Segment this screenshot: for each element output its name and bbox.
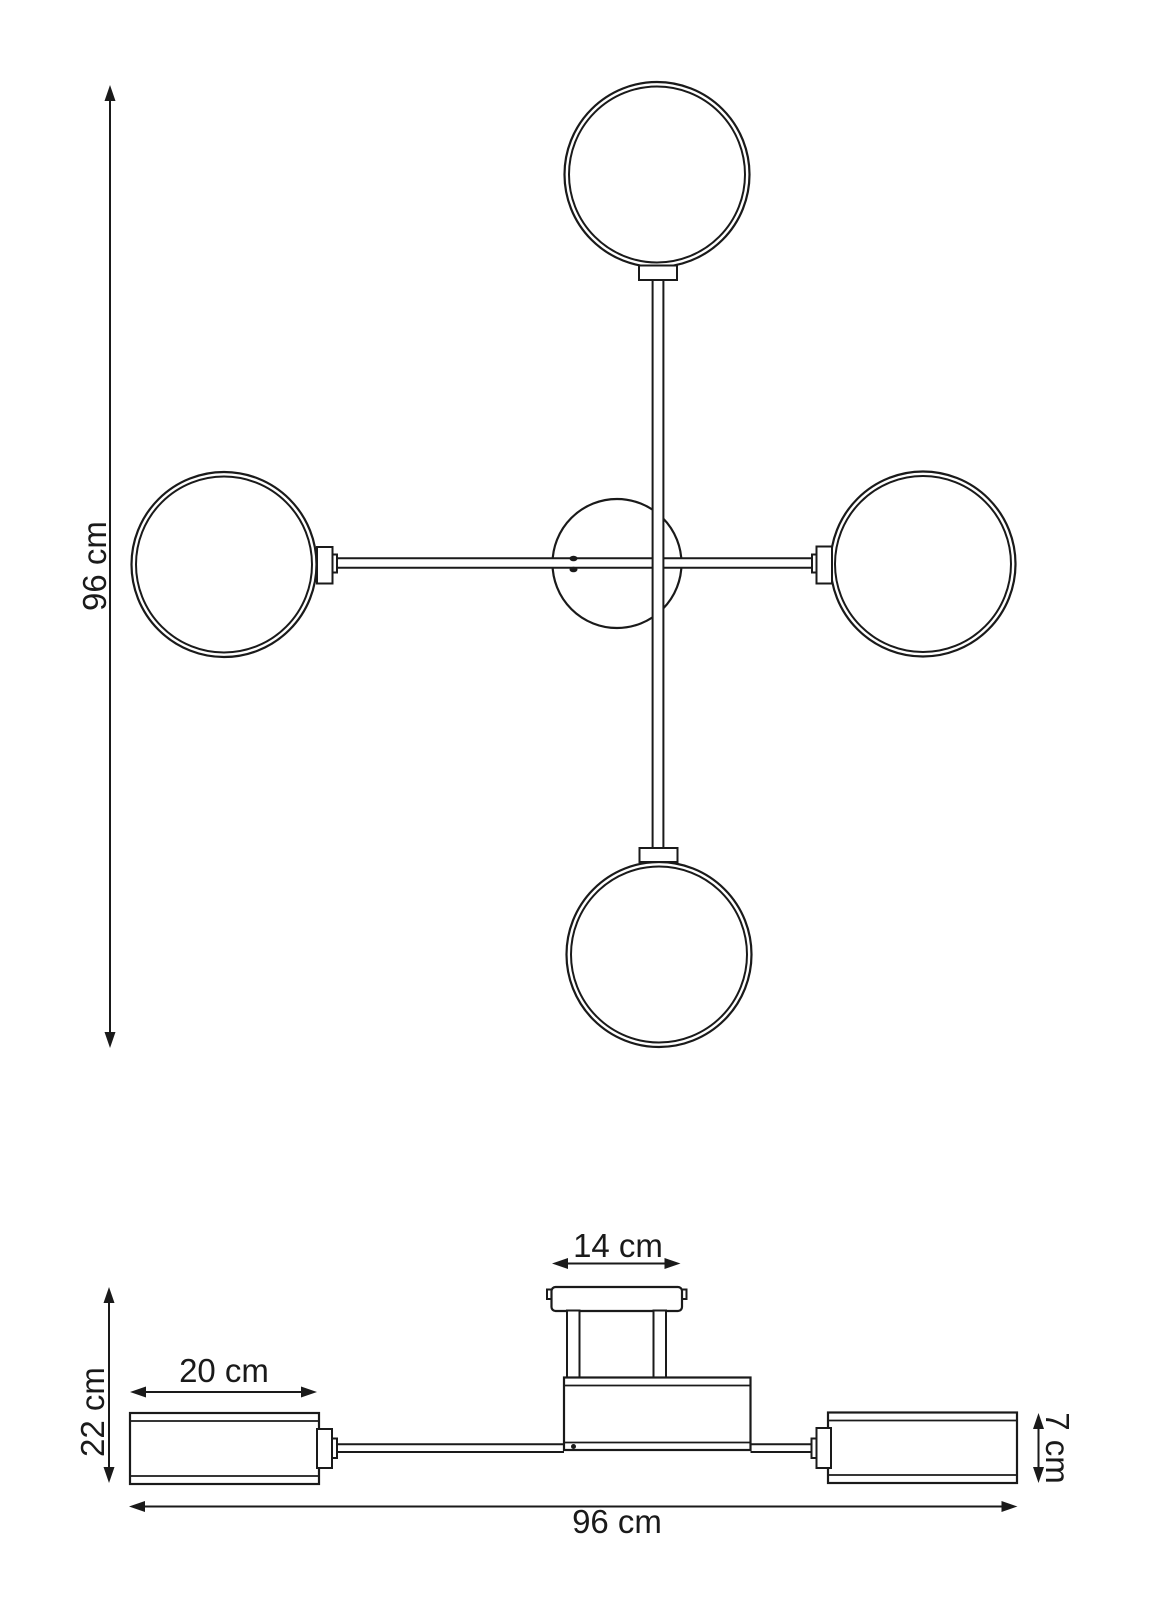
dim-label-7cm: 7 cm	[1039, 1412, 1076, 1484]
globe-bottom	[567, 862, 752, 1047]
dim-label-14cm: 14 cm	[573, 1227, 663, 1264]
shade-right-socket-step	[812, 1439, 817, 1459]
globe-left-outer	[132, 472, 317, 657]
dim-label-20cm: 20 cm	[179, 1352, 269, 1389]
vertical-arm-fill	[653, 279, 664, 849]
arrowhead-down-icon	[104, 1467, 115, 1483]
globe-right-inner	[835, 476, 1011, 652]
globe-bottom-inner	[571, 867, 747, 1043]
dim-shade-height: 7 cm	[1033, 1412, 1076, 1484]
dim-total-width: 96 cm	[129, 1501, 1018, 1540]
ceiling-canopy-side	[552, 1287, 683, 1311]
dim-top-view-height: 96 cm	[76, 85, 116, 1048]
shade-right-socket	[817, 1428, 832, 1468]
dim-label-22cm: 22 cm	[74, 1367, 111, 1457]
lamp-technical-drawing: 96 cm	[0, 0, 1149, 1600]
shade-left-outline	[130, 1413, 319, 1484]
arrowhead-right-icon	[1002, 1501, 1018, 1512]
dim-shade-length: 20 cm	[130, 1352, 317, 1398]
socket-step-right	[812, 555, 817, 573]
arrowhead-right-icon	[301, 1387, 317, 1398]
dim-canopy-width: 14 cm	[552, 1227, 681, 1269]
arrowhead-left-icon	[129, 1501, 145, 1512]
side-rod-left	[337, 1444, 565, 1452]
arrowhead-right-icon	[665, 1258, 681, 1269]
socket-left	[317, 547, 333, 584]
center-body-outline	[564, 1378, 751, 1451]
shade-right-outline	[828, 1413, 1017, 1484]
arrowhead-left-icon	[552, 1258, 568, 1269]
dim-label-96cm-width: 96 cm	[572, 1503, 662, 1540]
lamp-technical-drawing-page: 96 cm	[0, 0, 1149, 1600]
arrowhead-up-icon	[104, 1287, 115, 1303]
socket-top	[639, 266, 677, 281]
globe-top-inner	[569, 87, 745, 263]
arrowhead-up-icon	[105, 85, 116, 101]
screw-dot-bottom	[570, 567, 578, 573]
socket-right	[817, 547, 833, 584]
globe-left	[132, 472, 317, 657]
socket-step-left	[333, 555, 338, 573]
globe-bottom-outer	[567, 862, 752, 1047]
globe-left-inner	[136, 477, 312, 653]
arrowhead-left-icon	[130, 1387, 146, 1398]
shade-left-socket	[317, 1429, 332, 1468]
side-rod-right-fill	[751, 1444, 813, 1452]
globe-right	[831, 472, 1016, 657]
screw-dot-top	[570, 556, 578, 562]
stem-right	[654, 1311, 667, 1379]
dim-side-height: 22 cm	[74, 1287, 115, 1483]
dim-label-96cm-vertical: 96 cm	[76, 521, 113, 611]
stem-left	[567, 1311, 580, 1379]
arrowhead-down-icon	[105, 1032, 116, 1048]
top-view	[132, 82, 1016, 1047]
socket-bottom	[640, 848, 678, 862]
shade-left-socket-step	[332, 1439, 337, 1459]
globe-top	[565, 82, 750, 267]
side-rod-left-fill	[337, 1444, 565, 1452]
screw-dot-side	[571, 1444, 576, 1449]
shade-left	[130, 1413, 337, 1484]
globe-right-outer	[831, 472, 1016, 657]
shade-right	[812, 1413, 1018, 1484]
globe-top-outer	[565, 82, 750, 267]
side-rod-right	[751, 1444, 813, 1452]
vertical-arm	[653, 279, 664, 849]
center-body	[564, 1378, 751, 1451]
